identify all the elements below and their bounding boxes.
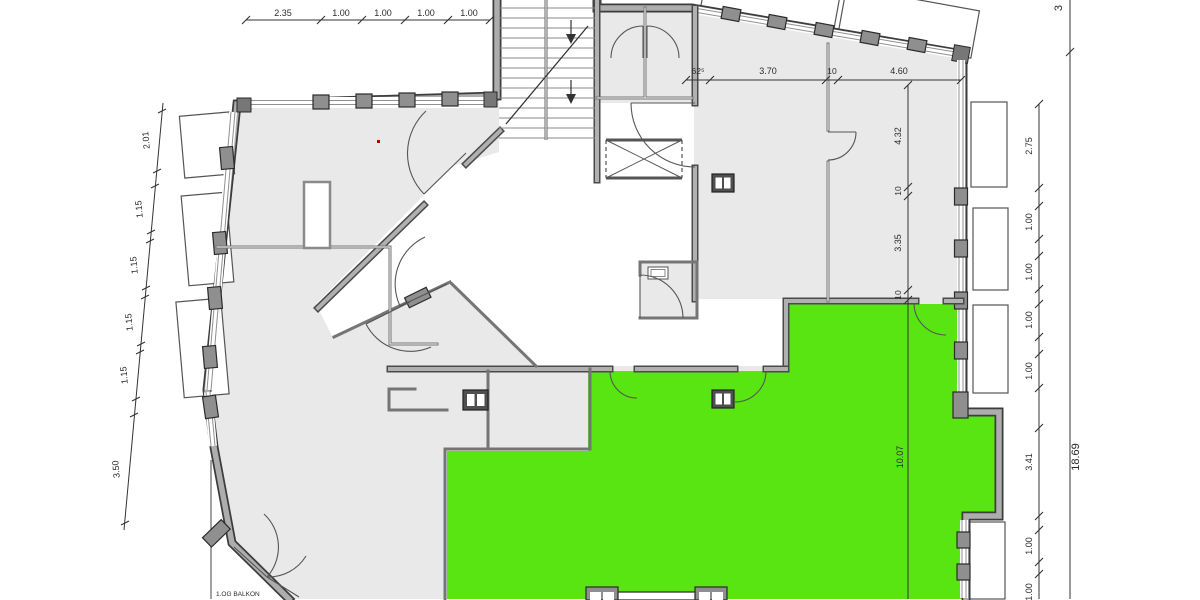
dim-rroom-4: 10 [893,290,903,300]
dim-rroom-1: 4.32 [893,127,903,145]
balcony-label: 1.OG BALKON [216,591,260,598]
dim-green-height: 10.07 [895,446,905,469]
bay-glazing [618,592,695,600]
bay-pier [586,587,618,600]
window-pier [213,231,228,254]
wall-corner-top-right [484,92,497,107]
dim-room-1: 62⁵ [692,66,705,76]
dim-right-5: 1.00 [1024,362,1034,380]
elevator-shaft [606,140,682,178]
window-pier [767,14,787,29]
dim-top-2: 1.00 [332,8,350,18]
window-pier [953,392,968,418]
bay-pier [695,587,727,600]
dim-total-partial: 3 [1053,5,1065,11]
dim-total: 18.69 [1070,443,1082,471]
dim-right-2: 1.00 [1024,213,1034,231]
window-pier [203,345,218,368]
window-pier [814,22,834,37]
dim-right-4: 1.00 [1024,311,1034,329]
dim-right-7: 1.00 [1024,537,1034,555]
window-pier [907,37,927,52]
window-pier [399,93,415,107]
column-symbol [712,174,734,192]
dim-top-4: 1.00 [417,8,435,18]
wall-corner-top-left [237,98,251,112]
dim-top-3: 1.00 [374,8,392,18]
balcony-right-4 [968,522,1005,599]
window-pier [955,188,968,205]
window-pier [957,564,970,580]
window-pier [955,240,968,257]
dim-top-1: 2.35 [274,8,292,18]
dim-top-5: 1.00 [460,8,478,18]
dim-left-5: 1.15 [118,366,129,384]
window-pier [313,95,329,109]
dim-room-2: 3.70 [759,66,777,76]
window-pier [442,92,458,106]
dim-right-1: 2.75 [1024,137,1034,155]
balcony-right-1 [971,102,1007,187]
window-pier [356,94,372,108]
dim-left-6: 3.50 [110,460,121,478]
duct-block [304,182,330,248]
balcony-right-2 [973,208,1008,290]
dim-rroom-2: 10 [893,186,903,196]
window-pier [860,30,880,45]
dim-room-3: 10 [827,66,837,76]
window-pier [721,6,741,21]
column-symbol [463,390,488,410]
dim-left-2: 1.15 [133,200,144,218]
dim-right-6: 3.41 [1024,453,1034,471]
window-pier [208,286,223,309]
window-pier [957,532,970,548]
reference-dot [377,140,380,143]
floor-plan-canvas: 2.351.001.001.001.002.011.151.151.151.15… [0,0,1200,600]
dim-left-3: 1.15 [128,256,139,274]
floor-plan-page: 2.351.001.001.001.002.011.151.151.151.15… [0,0,1200,600]
column-symbol [712,390,734,408]
dim-room-4: 4.60 [890,66,908,76]
dim-right-8: 1.00 [1024,583,1034,600]
window-pier [955,342,968,359]
dim-left-4: 1.15 [123,313,134,331]
dim-rroom-3: 3.35 [893,234,903,252]
window-pier [220,146,235,169]
balcony-right-3 [973,305,1008,393]
dim-right-3: 1.00 [1024,263,1034,281]
window-pier [203,395,219,419]
dim-left-1: 2.01 [140,131,151,149]
